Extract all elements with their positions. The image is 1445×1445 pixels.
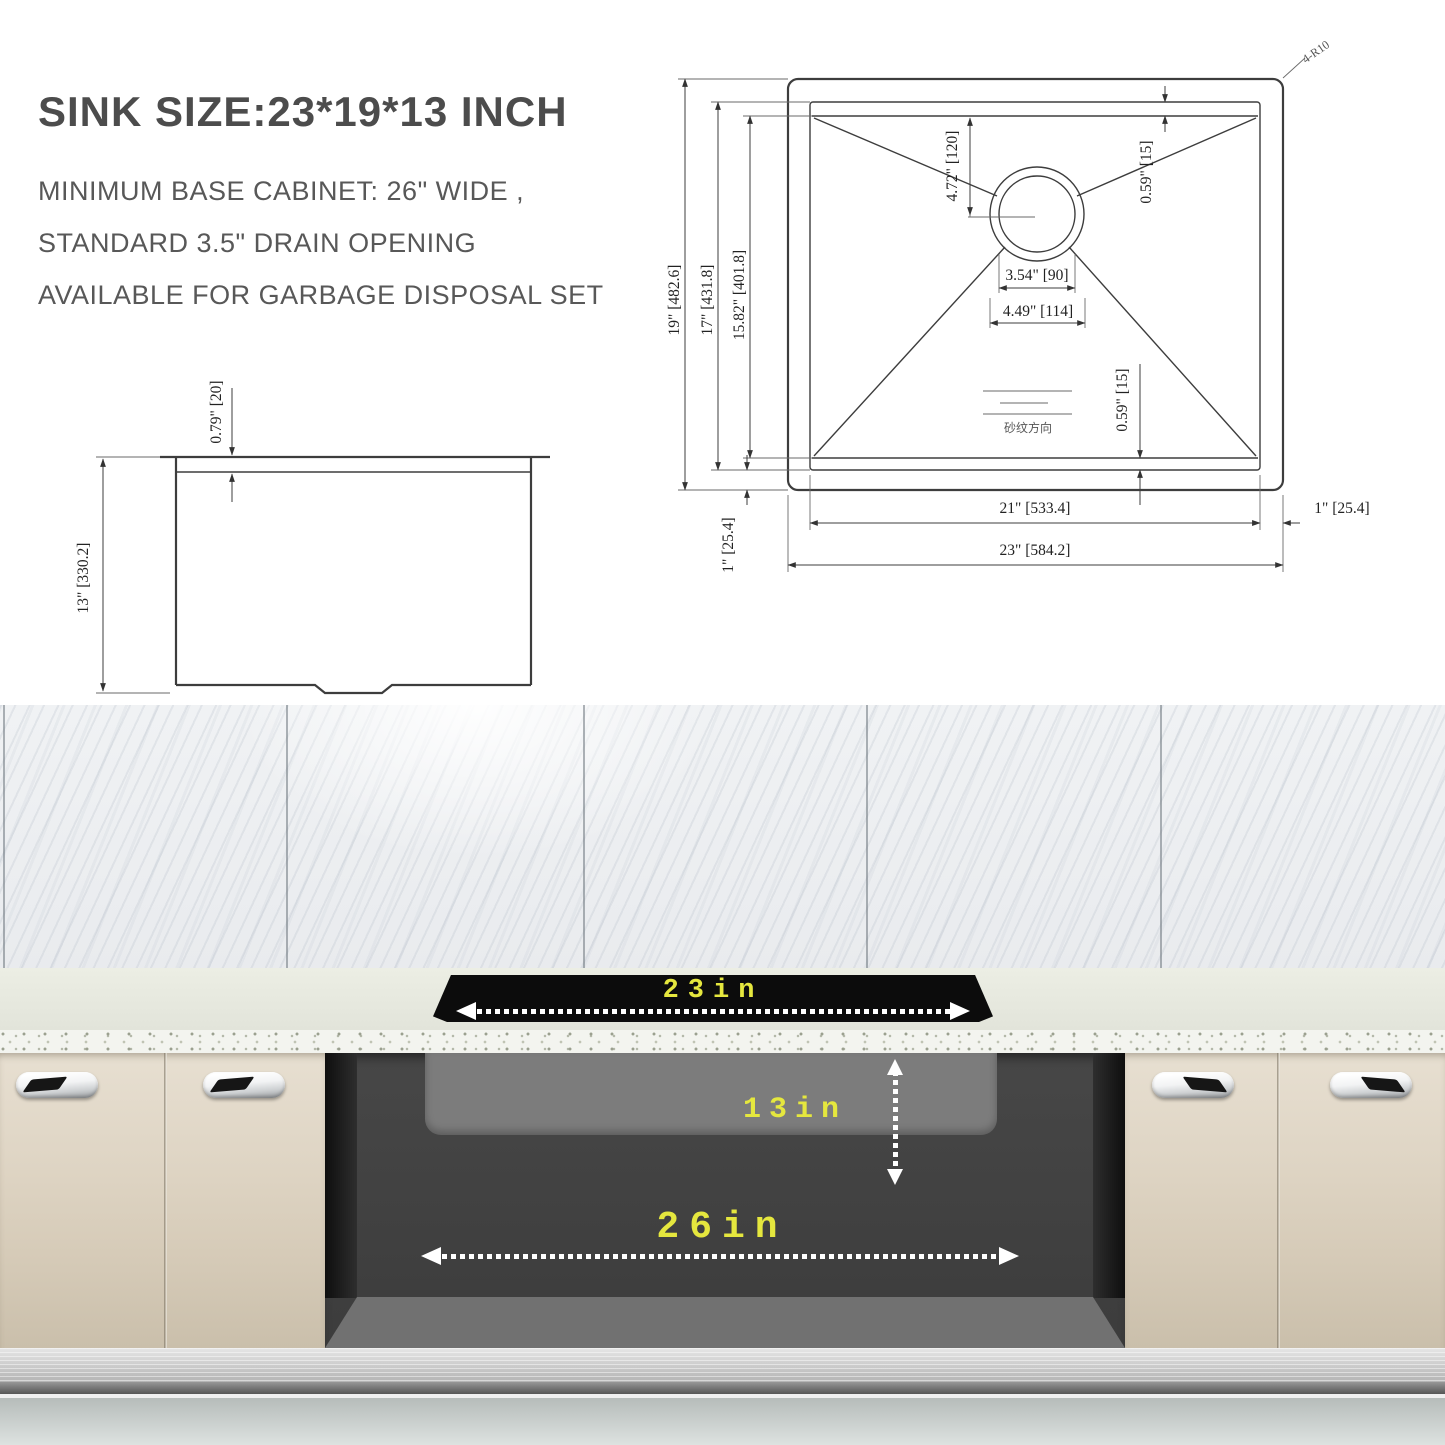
- tile-seam: [866, 705, 868, 969]
- marble-backsplash: [0, 705, 1445, 969]
- grain-direction-note: 砂纹方向: [1004, 420, 1052, 435]
- dim-bowl-length: 15.82" [401.8]: [731, 250, 748, 340]
- dim-inner-length: 17" [431.8]: [699, 265, 716, 336]
- spec-text-block: SINK SIZE:23*19*13 INCH MINIMUM BASE CAB…: [38, 88, 638, 334]
- opening-shadow-right: [1093, 1053, 1125, 1298]
- dim-rim-bottom: 0.59" [15]: [1114, 368, 1131, 431]
- tile-seam: [1160, 705, 1162, 969]
- arrowhead-right: [999, 1247, 1019, 1265]
- sink-cutout: 23in: [433, 975, 993, 1022]
- cabinet-floor: [325, 1297, 1125, 1348]
- spec-line-cabinet: MINIMUM BASE CABINET: 26" WIDE ,: [38, 178, 638, 205]
- tile-seam: [3, 705, 5, 969]
- dim-overall-width: 23" [584.2]: [1000, 542, 1071, 559]
- opening-shadow-left: [325, 1053, 357, 1298]
- arrowhead-left: [456, 1002, 476, 1020]
- cabinet-doors-left: [0, 1053, 325, 1348]
- installation-photo: 23in 13in: [0, 705, 1445, 1445]
- door-seam: [164, 1053, 167, 1348]
- dim-drain-inner: 3.54" [90]: [1005, 267, 1068, 284]
- arrowhead-left: [421, 1247, 441, 1265]
- toe-kick-shadow: [0, 1382, 1445, 1394]
- side-view-drawing: 0.79" [20] 13" [330.2]: [60, 360, 620, 710]
- dim-overall-length: 19" [482.6]: [666, 265, 683, 336]
- drain-circle-outer: [990, 167, 1084, 261]
- dim-drain-outer: 4.49" [114]: [1003, 303, 1073, 320]
- dim-inner-width: 21" [533.4]: [1000, 500, 1071, 517]
- cabinet-doors-right: [1125, 1053, 1445, 1348]
- toe-kick-strip: [0, 1348, 1445, 1382]
- door-seam: [1277, 1053, 1280, 1348]
- side-outline: [160, 457, 550, 693]
- cutout-width-label: 23in: [663, 976, 764, 1006]
- sink-depth-label: 13in: [743, 1093, 847, 1127]
- spec-line-disposal: AVAILABLE FOR GARBAGE DISPOSAL SET: [38, 282, 638, 309]
- arrowhead-up: [887, 1059, 903, 1075]
- door-handle: [203, 1072, 285, 1098]
- dim-left-margin: 1" [25.4]: [720, 517, 737, 572]
- corner-radius-note: 4-R10: [1299, 37, 1332, 66]
- kitchen-floor: [0, 1398, 1445, 1445]
- dotted-line: [433, 1254, 1007, 1259]
- dim-rim-top: 0.59" [15]: [1138, 140, 1155, 203]
- cabinet-opening: 13in 26in: [325, 1053, 1125, 1348]
- dim-right-margin: 1" [25.4]: [1314, 500, 1369, 517]
- cabinet-width-label: 26in: [656, 1206, 787, 1249]
- sink-size-title: SINK SIZE:23*19*13 INCH: [38, 88, 638, 136]
- dotted-line: [468, 1009, 958, 1014]
- product-spec-sheet: SINK SIZE:23*19*13 INCH MINIMUM BASE CAB…: [0, 0, 1445, 1445]
- plan-view-drawing: 19" [482.6] 17" [431.8] 15.82" [401.8] 4…: [640, 30, 1380, 670]
- dim-depth: 13" [330.2]: [75, 543, 92, 614]
- side-dimension-labels: 0.79" [20] 13" [330.2]: [75, 380, 225, 613]
- door-handle: [1152, 1072, 1234, 1098]
- countertop-front-edge: [0, 1030, 1445, 1055]
- spec-line-drain: STANDARD 3.5" DRAIN OPENING: [38, 230, 638, 257]
- tile-seam: [583, 705, 585, 969]
- drain-circle-inner: [999, 176, 1075, 252]
- tile-seam: [286, 705, 288, 969]
- door-handle: [1330, 1072, 1412, 1098]
- plan-dimension-labels: 19" [482.6] 17" [431.8] 15.82" [401.8] 4…: [666, 37, 1370, 572]
- arrowhead-down: [887, 1169, 903, 1185]
- dim-rim-height: 0.79" [20]: [208, 380, 225, 443]
- dim-drain-offset: 4.72" [120]: [944, 131, 961, 202]
- door-handle: [16, 1072, 98, 1098]
- dashed-line: [893, 1071, 898, 1173]
- arrowhead-right: [950, 1002, 970, 1020]
- sink-silhouette: [425, 1053, 997, 1135]
- plan-dimension-lines: [678, 79, 1300, 572]
